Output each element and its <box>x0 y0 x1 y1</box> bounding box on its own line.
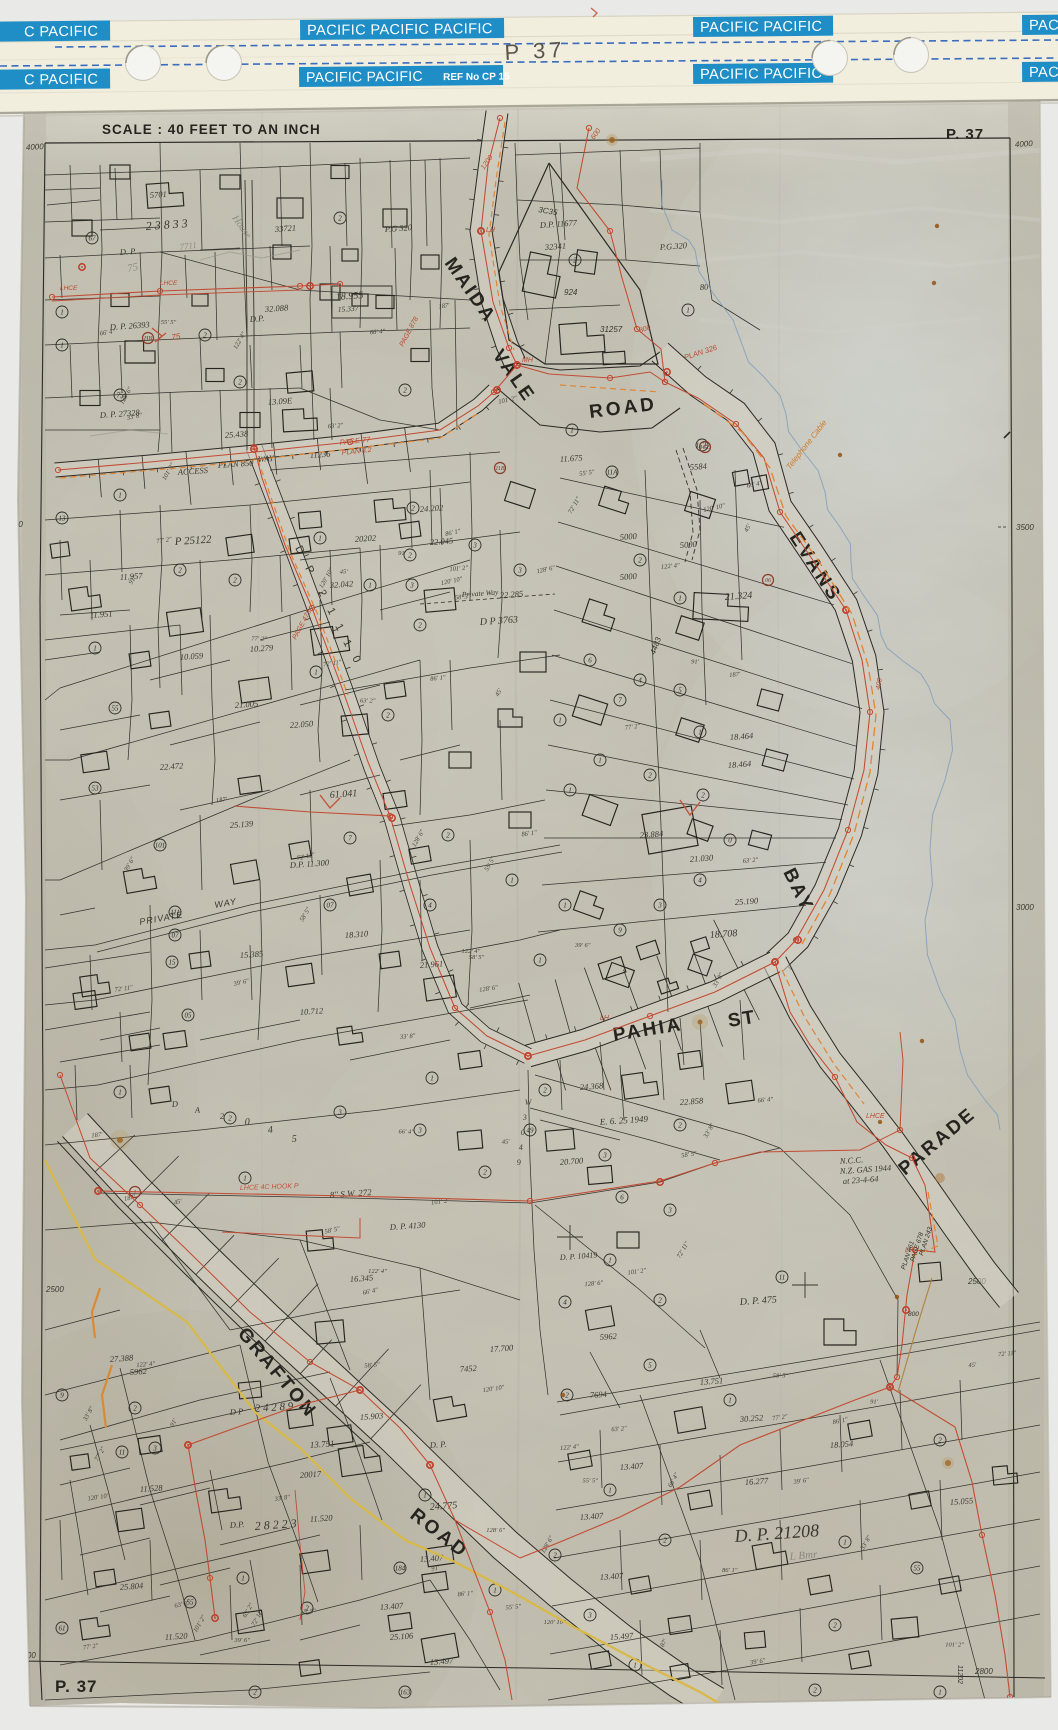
svg-text:58' 5": 58' 5" <box>455 593 471 601</box>
svg-text:1: 1 <box>686 307 690 315</box>
svg-text:18.464: 18.464 <box>727 758 752 770</box>
svg-text:1CE: 1CE <box>700 445 711 451</box>
svg-text:3: 3 <box>337 1109 342 1117</box>
svg-text:2500: 2500 <box>45 1285 64 1294</box>
svg-text:4: 4 <box>563 1299 567 1307</box>
svg-text:D P: D P <box>228 1406 243 1417</box>
svg-text:2: 2 <box>411 505 415 513</box>
svg-text:24.775: 24.775 <box>429 1500 457 1513</box>
svg-text:1: 1 <box>570 427 574 435</box>
svg-text:4: 4 <box>519 1143 524 1152</box>
svg-text:86' 1": 86' 1" <box>457 1590 473 1598</box>
svg-text:2: 2 <box>938 1437 942 1445</box>
svg-text:2: 2 <box>133 1405 137 1413</box>
svg-text:13.751: 13.751 <box>309 1438 334 1450</box>
svg-text:1: 1 <box>608 1487 612 1495</box>
svg-text:2: 2 <box>483 1169 487 1177</box>
svg-text:20202: 20202 <box>354 532 377 544</box>
svg-text:13.407: 13.407 <box>619 1460 644 1472</box>
svg-text:5962: 5962 <box>599 1331 617 1342</box>
svg-text:75: 75 <box>117 392 125 400</box>
svg-text:P.G.320: P.G.320 <box>658 240 688 252</box>
svg-text:55: 55 <box>112 705 120 713</box>
svg-text:4: 4 <box>267 1125 273 1136</box>
svg-text:13: 13 <box>59 515 67 523</box>
svg-text:3: 3 <box>657 902 662 910</box>
svg-text:1: 1 <box>608 1257 612 1265</box>
svg-text:1: 1 <box>118 492 122 500</box>
svg-text:3: 3 <box>602 1152 607 1160</box>
svg-text:30.252: 30.252 <box>738 1412 764 1424</box>
svg-text:55: 55 <box>914 1565 922 1573</box>
svg-text:2: 2 <box>305 1605 309 1613</box>
svg-text:1: 1 <box>728 1397 732 1405</box>
svg-text:24.368: 24.368 <box>579 1080 604 1092</box>
svg-text:PACIFIC: PACIFIC <box>1029 64 1058 81</box>
svg-text:2: 2 <box>203 332 207 340</box>
svg-text:LH: LH <box>600 1015 610 1022</box>
svg-text:3: 3 <box>472 542 477 550</box>
svg-text:55' 5": 55' 5" <box>161 319 177 326</box>
svg-text:55' 5": 55' 5" <box>505 1603 521 1611</box>
svg-text:22.285: 22.285 <box>499 588 523 600</box>
svg-text:3: 3 <box>409 582 414 590</box>
svg-text:61: 61 <box>59 1625 66 1633</box>
svg-text:SCALE : 40 FEET TO AN INCH: SCALE : 40 FEET TO AN INCH <box>102 122 321 137</box>
svg-text:45': 45' <box>502 1138 511 1146</box>
svg-text:5000: 5000 <box>679 539 697 550</box>
svg-text:PACIFIC: PACIFIC <box>1029 17 1058 34</box>
svg-text:11.520: 11.520 <box>309 1512 333 1524</box>
svg-text:2: 2 <box>253 1689 257 1697</box>
svg-text:58' 5": 58' 5" <box>773 1373 789 1380</box>
svg-text:2: 2 <box>663 1537 667 1545</box>
svg-text:18.310: 18.310 <box>344 928 369 940</box>
svg-text:33' 8": 33' 8" <box>399 1033 416 1041</box>
svg-text:5701: 5701 <box>149 189 167 200</box>
svg-text:1: 1 <box>368 582 372 590</box>
svg-text:5584: 5584 <box>689 461 707 472</box>
svg-text:7452: 7452 <box>459 1363 477 1374</box>
svg-text:25.438: 25.438 <box>224 428 249 440</box>
svg-text:LHCE: LHCE <box>160 280 178 287</box>
svg-text:32.042: 32.042 <box>328 578 354 590</box>
svg-text:2: 2 <box>408 552 412 560</box>
svg-text:2: 2 <box>338 215 342 223</box>
svg-text:3000: 3000 <box>1016 903 1034 912</box>
svg-text:13.407: 13.407 <box>419 1552 444 1564</box>
svg-text:13.497: 13.497 <box>429 1655 454 1667</box>
svg-text:1: 1 <box>430 1075 434 1083</box>
svg-text:3: 3 <box>522 1113 528 1122</box>
svg-text:80: 80 <box>699 281 709 292</box>
svg-text:25.106: 25.106 <box>389 1630 414 1642</box>
svg-text:5: 5 <box>648 1362 652 1370</box>
svg-text:66' 4": 66' 4" <box>757 1096 773 1104</box>
svg-text:1: 1 <box>60 309 64 317</box>
svg-text:2 8 2 2 3: 2 8 2 2 3 <box>254 1516 297 1533</box>
svg-text:91': 91' <box>691 658 700 665</box>
svg-text:67: 67 <box>89 235 97 243</box>
svg-text:1: 1 <box>843 1539 847 1547</box>
svg-text:32341: 32341 <box>543 241 566 253</box>
svg-text:5: 5 <box>678 687 682 695</box>
svg-text:2 3 8 3 3: 2 3 8 3 3 <box>145 216 188 233</box>
svg-text:HB: HB <box>143 336 152 342</box>
svg-text:2: 2 <box>233 577 237 585</box>
svg-text:13.09E: 13.09E <box>267 395 293 407</box>
svg-text:2: 2 <box>573 257 577 265</box>
svg-text:11202: 11202 <box>956 1665 963 1684</box>
svg-text:25.804: 25.804 <box>119 1580 144 1592</box>
svg-text:91': 91' <box>431 1565 440 1573</box>
svg-text:187': 187' <box>91 1131 103 1139</box>
svg-text:63' 2": 63' 2" <box>360 698 376 705</box>
svg-text:1: 1 <box>134 1190 137 1196</box>
svg-text:6: 6 <box>620 1194 624 1202</box>
svg-text:11.528: 11.528 <box>139 1482 163 1494</box>
svg-text:21.030: 21.030 <box>689 852 714 864</box>
svg-text:13.407: 13.407 <box>379 1600 404 1612</box>
svg-text:D.P.: D.P. <box>228 1519 244 1530</box>
svg-text:2: 2 <box>553 1552 557 1560</box>
svg-text:1: 1 <box>598 757 602 765</box>
svg-text:21.005: 21.005 <box>234 698 258 710</box>
svg-text:D.P.: D.P. <box>248 313 264 324</box>
svg-text:2: 2 <box>403 387 407 395</box>
svg-text:11B: 11B <box>495 466 505 472</box>
svg-text:1: 1 <box>678 595 682 603</box>
svg-text:C PACIFIC: C PACIFIC <box>24 72 98 89</box>
svg-text:2: 2 <box>833 1622 837 1630</box>
svg-text:2: 2 <box>658 1297 662 1305</box>
svg-text:0: 0 <box>728 837 732 845</box>
svg-text:15.497: 15.497 <box>609 1630 634 1642</box>
svg-text:3: 3 <box>152 1445 157 1453</box>
svg-text:66' 4": 66' 4" <box>370 328 386 336</box>
svg-text:LH: LH <box>486 227 496 234</box>
svg-text:D. P.: D. P. <box>118 246 136 257</box>
svg-text:2: 2 <box>178 567 182 575</box>
svg-text:3500: 3500 <box>1016 523 1034 532</box>
svg-text:55: 55 <box>187 1599 195 1607</box>
svg-text:P. 37: P. 37 <box>946 126 984 143</box>
svg-text:11.520: 11.520 <box>164 1630 188 1642</box>
svg-text:18.464: 18.464 <box>729 730 754 742</box>
svg-text:25.139: 25.139 <box>229 818 254 830</box>
svg-text:33721: 33721 <box>273 223 296 235</box>
svg-text:18.054: 18.054 <box>829 1438 854 1450</box>
svg-text:11: 11 <box>119 1449 125 1457</box>
svg-text:2: 2 <box>446 832 450 840</box>
svg-text:2: 2 <box>418 622 422 630</box>
svg-text:PACIFIC PACIFIC: PACIFIC PACIFIC <box>306 68 423 85</box>
svg-text:2: 2 <box>648 772 652 780</box>
svg-text:1: 1 <box>314 669 318 677</box>
svg-text:2: 2 <box>638 557 642 565</box>
svg-text:MH: MH <box>522 357 534 364</box>
svg-text:1: 1 <box>243 1175 247 1183</box>
svg-text:2: 2 <box>238 379 242 387</box>
svg-text:25.190: 25.190 <box>734 895 759 907</box>
svg-text:111: 111 <box>170 909 179 917</box>
svg-text:16.277: 16.277 <box>744 1475 769 1487</box>
svg-text:15.337: 15.337 <box>338 304 359 314</box>
svg-text:55' 5": 55' 5" <box>582 1477 598 1484</box>
svg-text:91': 91' <box>870 1398 879 1405</box>
svg-text:2: 2 <box>701 792 705 800</box>
svg-text:P.G 320: P.G 320 <box>383 222 413 234</box>
svg-text:7: 7 <box>618 697 622 705</box>
svg-text:86' 1": 86' 1" <box>722 1567 738 1574</box>
svg-text:128' 6": 128' 6" <box>486 1527 505 1534</box>
svg-text:31257: 31257 <box>600 325 623 334</box>
svg-text:27.388: 27.388 <box>109 1352 134 1364</box>
svg-text:7: 7 <box>348 835 352 843</box>
svg-text:163: 163 <box>400 1689 411 1697</box>
svg-text:4: 4 <box>638 677 642 685</box>
svg-text:11.675: 11.675 <box>559 452 582 464</box>
svg-text:45': 45' <box>340 569 349 576</box>
svg-text:3: 3 <box>517 567 522 575</box>
svg-text:0: 0 <box>244 1117 250 1128</box>
svg-text:15: 15 <box>169 959 177 967</box>
svg-text:22.472: 22.472 <box>159 760 184 772</box>
svg-text:9: 9 <box>618 927 622 935</box>
svg-text:45': 45' <box>968 1362 977 1370</box>
svg-text:4: 4 <box>698 877 702 885</box>
svg-text:06: 06 <box>765 578 771 584</box>
svg-text:07: 07 <box>327 902 335 910</box>
svg-text:1: 1 <box>93 645 97 653</box>
svg-text:101' 2": 101' 2" <box>945 1642 964 1649</box>
svg-text:LHCE: LHCE <box>60 285 78 292</box>
svg-text:5000: 5000 <box>619 531 637 542</box>
svg-text:63' 2": 63' 2" <box>328 422 344 430</box>
svg-text:800: 800 <box>908 1311 919 1318</box>
svg-text:10.279: 10.279 <box>249 642 274 654</box>
svg-text:REF No CP 15: REF No CP 15 <box>443 71 510 83</box>
svg-text:2: 2 <box>386 712 390 720</box>
svg-text:2: 2 <box>543 1087 547 1095</box>
svg-text:2: 2 <box>678 1122 682 1130</box>
svg-text:L Bmr: L Bmr <box>788 1549 818 1564</box>
svg-text:924: 924 <box>564 288 578 297</box>
svg-text:1: 1 <box>118 1089 122 1097</box>
svg-text:61.041: 61.041 <box>329 788 357 801</box>
svg-text:1: 1 <box>938 1689 942 1697</box>
svg-text:7694: 7694 <box>589 1389 607 1400</box>
svg-text:13.407: 13.407 <box>579 1510 604 1522</box>
svg-text:122' 4": 122' 4" <box>368 1268 387 1275</box>
svg-text:10.712: 10.712 <box>299 1005 324 1017</box>
svg-text:187': 187' <box>729 671 741 679</box>
svg-text:49: 49 <box>527 1127 535 1135</box>
svg-text:20017: 20017 <box>299 1468 322 1480</box>
svg-text:PACIFIC PACIFIC: PACIFIC PACIFIC <box>700 19 822 36</box>
svg-text:17.700: 17.700 <box>489 1342 514 1354</box>
svg-text:58' 5": 58' 5" <box>364 1361 380 1369</box>
svg-text:1: 1 <box>538 957 542 965</box>
svg-text:63' 2": 63' 2" <box>743 857 759 865</box>
svg-text:07: 07 <box>172 932 180 940</box>
svg-text:15.903: 15.903 <box>359 1410 383 1422</box>
svg-text:3: 3 <box>417 1127 422 1135</box>
svg-text:39' 6": 39' 6" <box>233 1637 250 1644</box>
svg-text:13.407: 13.407 <box>599 1570 624 1582</box>
svg-text:15.385: 15.385 <box>239 948 263 960</box>
svg-text:2: 2 <box>565 1392 569 1400</box>
svg-text:58' 5": 58' 5" <box>469 954 485 961</box>
svg-text:101: 101 <box>155 842 166 850</box>
svg-text:21.324: 21.324 <box>724 590 752 603</box>
svg-text:1: 1 <box>493 1587 497 1595</box>
svg-text:63' 2": 63' 2" <box>611 1425 627 1433</box>
svg-text:15.055: 15.055 <box>949 1495 973 1507</box>
svg-text:11A: 11A <box>607 469 618 477</box>
svg-text:05: 05 <box>185 1012 193 1020</box>
svg-text:3: 3 <box>667 1207 672 1215</box>
svg-text:2: 2 <box>228 1115 232 1123</box>
svg-text:5: 5 <box>291 1134 297 1145</box>
svg-text:C PACIFIC: C PACIFIC <box>24 24 98 41</box>
svg-text:1: 1 <box>633 1662 637 1670</box>
svg-text:21.961: 21.961 <box>419 958 443 970</box>
svg-text:18.955: 18.955 <box>335 290 363 303</box>
svg-text:D. P.: D. P. <box>428 1439 446 1450</box>
svg-text:23.884: 23.884 <box>639 828 664 840</box>
svg-text:18.708: 18.708 <box>709 928 737 941</box>
svg-text:LHCE: LHCE <box>866 1113 885 1120</box>
svg-text:10.059: 10.059 <box>179 650 204 662</box>
svg-text:66' 4": 66' 4" <box>398 1129 414 1136</box>
svg-text:P 37: P 37 <box>504 37 566 65</box>
svg-text:22.858: 22.858 <box>679 1095 704 1107</box>
svg-text:PACIFIC PACIFIC PACIFIC: PACIFIC PACIFIC PACIFIC <box>307 21 493 39</box>
svg-text:22.050: 22.050 <box>289 718 314 730</box>
svg-text:1: 1 <box>568 787 572 795</box>
svg-text:4000: 4000 <box>26 142 45 152</box>
svg-text:39' 6": 39' 6" <box>574 942 591 949</box>
svg-text:WAY: WAY <box>257 453 275 464</box>
svg-text:4: 4 <box>428 902 432 910</box>
svg-text:PACIFIC PACIFIC: PACIFIC PACIFIC <box>700 66 822 83</box>
svg-text:20.700: 20.700 <box>559 1155 584 1167</box>
svg-text:1: 1 <box>558 717 562 725</box>
svg-text:1: 1 <box>423 1492 427 1500</box>
svg-text:24.202: 24.202 <box>419 502 444 514</box>
svg-text:11.951: 11.951 <box>89 608 112 620</box>
svg-text:9: 9 <box>517 1158 522 1167</box>
svg-text:1: 1 <box>241 1575 245 1583</box>
svg-text:4000: 4000 <box>1015 139 1034 149</box>
svg-text:P. 37: P. 37 <box>55 1677 98 1696</box>
svg-text:53: 53 <box>92 785 100 793</box>
svg-text:2: 2 <box>813 1687 817 1695</box>
svg-text:13.751: 13.751 <box>699 1375 723 1387</box>
svg-text:11: 11 <box>779 1274 785 1282</box>
svg-text:3: 3 <box>587 1612 592 1620</box>
svg-text:86' 1": 86' 1" <box>430 674 446 682</box>
svg-text:11236: 11236 <box>309 449 331 460</box>
svg-text:32.088: 32.088 <box>263 302 289 314</box>
svg-text:1: 1 <box>510 877 514 885</box>
svg-text:9: 9 <box>60 1392 64 1400</box>
svg-text:77' 2": 77' 2" <box>251 635 267 642</box>
svg-text:1: 1 <box>698 729 702 737</box>
svg-text:1: 1 <box>60 342 64 350</box>
svg-text:5000: 5000 <box>619 571 637 582</box>
svg-text:184: 184 <box>395 1565 406 1573</box>
svg-text:1: 1 <box>563 902 567 910</box>
svg-text:1: 1 <box>318 535 322 543</box>
svg-text:6: 6 <box>588 657 592 665</box>
